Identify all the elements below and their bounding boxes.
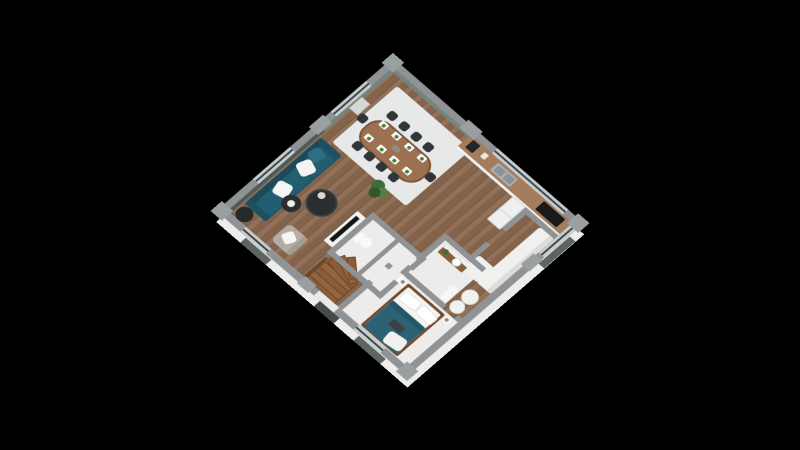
scene-background — [0, 0, 800, 450]
floor-plan — [216, 58, 584, 376]
